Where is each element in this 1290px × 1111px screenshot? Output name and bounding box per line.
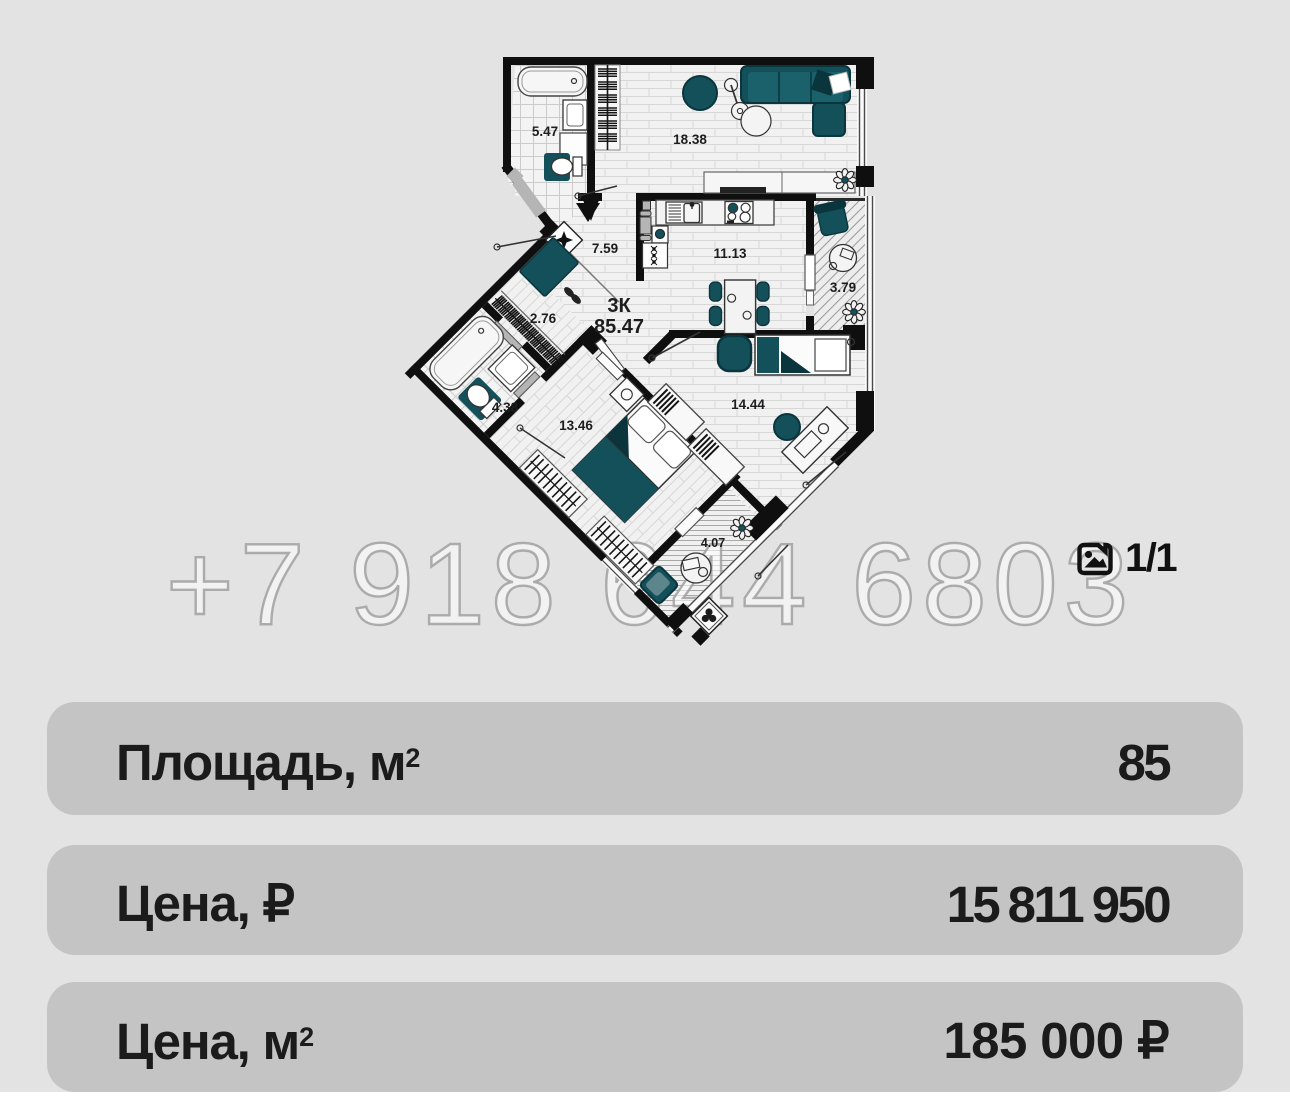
svg-text:4.38: 4.38 — [492, 400, 519, 415]
svg-text:5.47: 5.47 — [532, 124, 558, 139]
svg-text:3.79: 3.79 — [830, 280, 856, 295]
svg-text:85.47: 85.47 — [594, 316, 644, 338]
svg-text:7.59: 7.59 — [592, 241, 618, 256]
svg-text:18.38: 18.38 — [673, 132, 707, 147]
svg-text:11.13: 11.13 — [713, 246, 747, 261]
svg-text:2.76: 2.76 — [530, 311, 557, 326]
svg-text:4.07: 4.07 — [701, 536, 725, 550]
svg-text:3К: 3К — [607, 295, 631, 317]
svg-text:13.46: 13.46 — [559, 418, 593, 433]
svg-text:14.44: 14.44 — [731, 397, 765, 412]
